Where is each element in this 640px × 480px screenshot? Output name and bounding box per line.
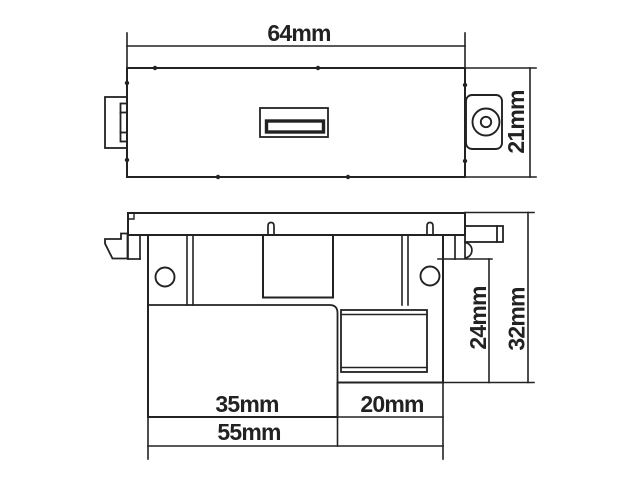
usb-port-slot <box>260 108 328 137</box>
dim-label-height-side: 21mm <box>503 90 529 154</box>
dim-label-total-width: 55mm <box>217 419 281 445</box>
mounting-tab-right <box>466 95 502 149</box>
dim-label-inner-depth: 24mm <box>465 286 491 350</box>
mounting-tab-left <box>105 97 127 148</box>
dim-label-width-top: 64mm <box>267 20 331 46</box>
mounting-flange <box>128 213 465 235</box>
clip-right <box>465 226 503 242</box>
drawing-canvas: 64mm 21mm 35mm 20mm 55mm 24mm 32mm <box>0 0 640 480</box>
dim-label-connector-width: 20mm <box>360 391 424 417</box>
dim-label-total-depth: 32mm <box>504 287 530 351</box>
connector-housing <box>341 310 427 372</box>
technical-drawing: 64mm 21mm 35mm 20mm 55mm 24mm 32mm <box>0 0 640 480</box>
dim-label-body-width: 35mm <box>215 391 279 417</box>
